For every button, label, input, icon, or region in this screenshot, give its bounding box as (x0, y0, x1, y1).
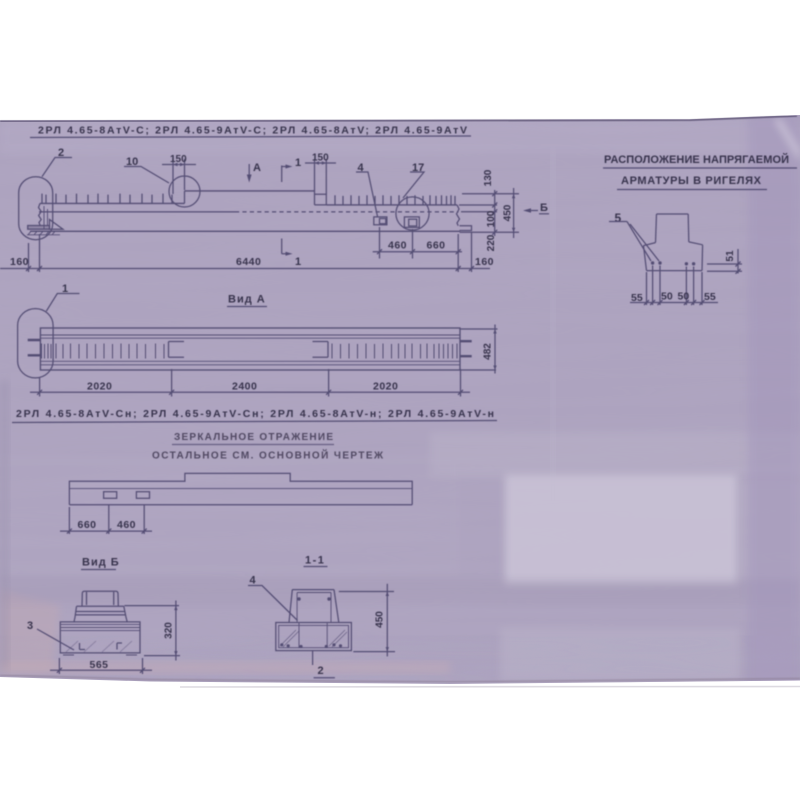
svg-text:55: 55 (631, 292, 643, 304)
svg-text:565: 565 (90, 659, 109, 671)
svg-text:1-1: 1-1 (305, 555, 325, 567)
svg-text:1: 1 (62, 283, 68, 295)
svg-text:50: 50 (661, 291, 673, 303)
svg-text:1: 1 (295, 157, 301, 169)
svg-text:450: 450 (503, 204, 514, 221)
svg-text:460: 460 (388, 240, 407, 252)
svg-text:150: 150 (170, 154, 187, 165)
svg-text:10: 10 (126, 156, 138, 168)
svg-text:АРМАТУРЫ В РИГЕЛЯХ: АРМАТУРЫ В РИГЕЛЯХ (621, 175, 762, 187)
svg-text:РАСПОЛОЖЕНИЕ НАПРЯГАЕМОЙ: РАСПОЛОЖЕНИЕ НАПРЯГАЕМОЙ (604, 153, 789, 166)
svg-text:220: 220 (486, 234, 497, 251)
svg-text:150: 150 (312, 153, 329, 164)
svg-text:Б: Б (540, 202, 548, 214)
svg-text:4: 4 (250, 575, 257, 587)
svg-text:2020: 2020 (373, 381, 398, 393)
svg-text:2020: 2020 (87, 381, 112, 393)
svg-text:160: 160 (475, 256, 494, 268)
svg-text:Вид А: Вид А (228, 294, 266, 306)
svg-text:100: 100 (486, 210, 497, 227)
svg-text:482: 482 (483, 343, 494, 360)
svg-text:Вид Б: Вид Б (82, 557, 120, 569)
svg-text:320: 320 (164, 622, 175, 639)
svg-text:2400: 2400 (232, 381, 257, 393)
svg-text:5: 5 (615, 211, 622, 225)
svg-text:450: 450 (375, 611, 386, 628)
svg-text:2: 2 (58, 147, 64, 159)
svg-text:55: 55 (704, 291, 716, 303)
svg-text:4: 4 (358, 162, 365, 174)
svg-text:А: А (253, 162, 261, 174)
svg-text:17: 17 (412, 162, 424, 174)
svg-text:1: 1 (295, 256, 301, 268)
svg-text:130: 130 (483, 169, 494, 186)
svg-text:460: 460 (117, 519, 136, 531)
svg-text:ЗЕРКАЛЬНОЕ ОТРАЖЕНИЕ: ЗЕРКАЛЬНОЕ ОТРАЖЕНИЕ (174, 432, 333, 443)
svg-text:51: 51 (725, 250, 736, 262)
svg-text:2: 2 (318, 665, 324, 677)
svg-text:660: 660 (427, 240, 446, 252)
svg-text:50: 50 (678, 291, 690, 303)
svg-text:660: 660 (78, 519, 97, 531)
svg-text:160: 160 (10, 256, 29, 268)
svg-text:2РЛ 4.65-8АтV-Сн; 2РЛ 4.65-9А: 2РЛ 4.65-8АтV-Сн; 2РЛ 4.65-9АтV-Сн; 2РЛ … (16, 408, 494, 420)
svg-text:3: 3 (27, 620, 33, 632)
svg-text:6440: 6440 (236, 256, 261, 268)
